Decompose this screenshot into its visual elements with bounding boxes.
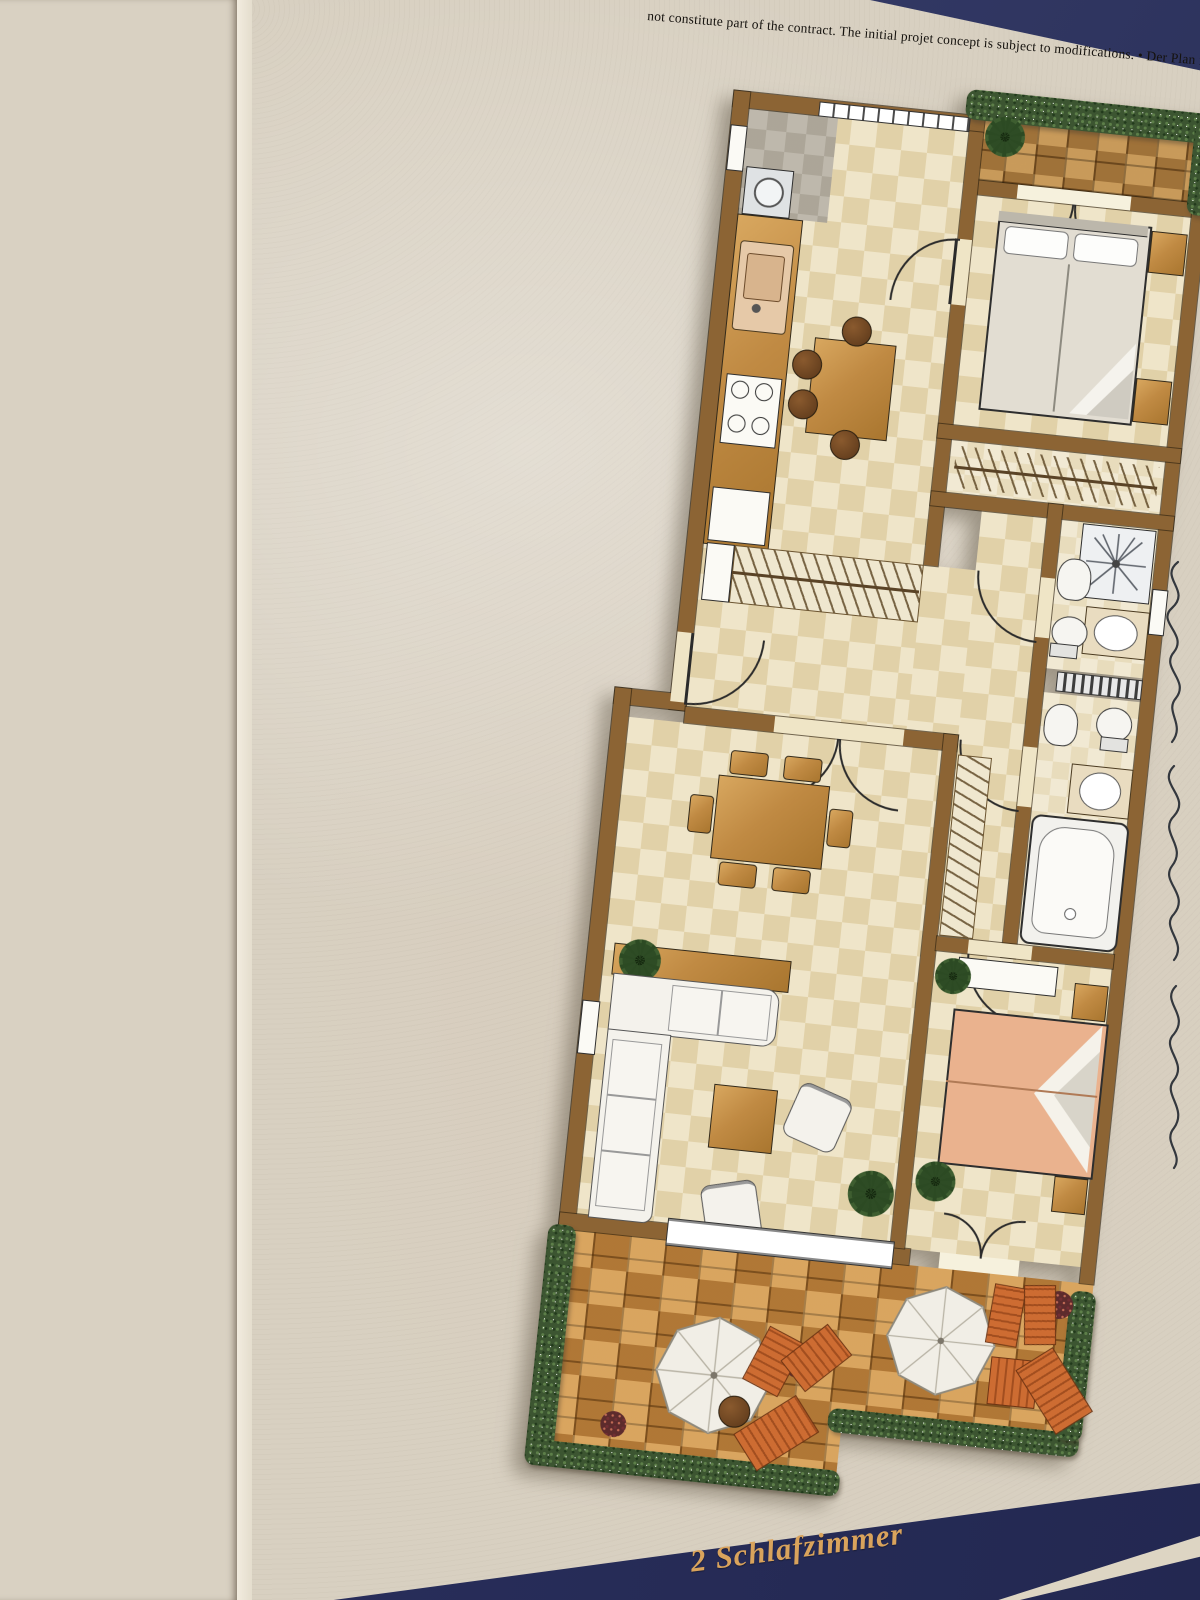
dining-chair [771, 867, 811, 895]
toilet-tank [1099, 736, 1128, 753]
parasol [879, 1279, 1002, 1402]
nightstand [1148, 231, 1188, 277]
sofa-cushion [601, 1095, 657, 1156]
handwritten-note [1148, 556, 1200, 1176]
bathtub-inner [1030, 825, 1117, 940]
sofa-cushion [717, 990, 772, 1041]
dining-chair [729, 750, 769, 778]
paper-edge-highlight [237, 0, 252, 1600]
dining-chair [826, 808, 854, 848]
nightstand [1051, 1176, 1089, 1215]
nightstand [1071, 983, 1109, 1022]
dining-chair [717, 861, 757, 889]
nightstand [1132, 378, 1172, 426]
stove [719, 373, 782, 448]
coffee-table [708, 1084, 778, 1154]
sink-basin [743, 253, 786, 303]
toilet-tank [1049, 643, 1078, 660]
fridge [707, 486, 770, 546]
sofa-cushion [595, 1150, 651, 1211]
dining-chair [783, 755, 823, 783]
dining-table [710, 775, 830, 870]
sun-lounger [1024, 1285, 1056, 1345]
wood-table-edge [0, 0, 237, 1600]
dining-chair [687, 794, 715, 834]
kitchen-table [805, 337, 897, 441]
sofa-cushion [607, 1039, 663, 1100]
sofa-cushion [668, 985, 723, 1036]
